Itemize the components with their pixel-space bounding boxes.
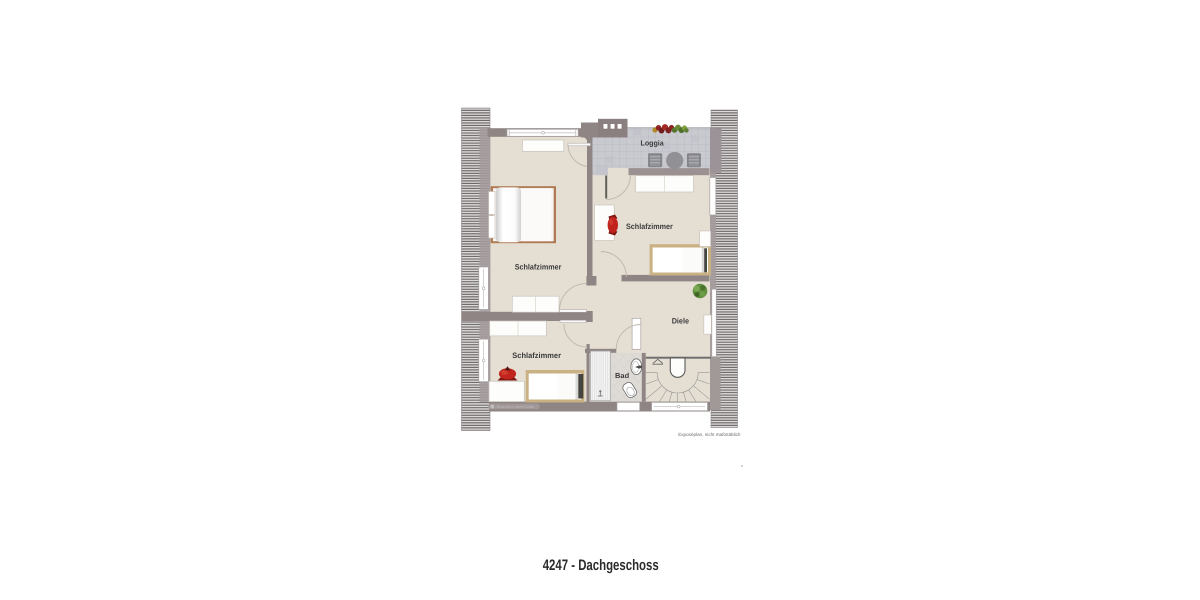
svg-text:Schlafzimmer: Schlafzimmer — [515, 262, 562, 271]
svg-text:Exposéplan, nicht maßstäblich: Exposéplan, nicht maßstäblich — [678, 432, 741, 437]
svg-text:Loggia: Loggia — [641, 138, 665, 147]
svg-text:Illustration ImmoScale: Illustration ImmoScale — [497, 405, 534, 409]
svg-text:Schlafzimmer: Schlafzimmer — [626, 222, 673, 231]
svg-text:Diele: Diele — [672, 316, 690, 325]
svg-text:4247 - Dachgeschoss: 4247 - Dachgeschoss — [543, 557, 659, 574]
svg-text:Schlafzimmer: Schlafzimmer — [512, 351, 561, 360]
svg-text:Bad: Bad — [615, 371, 629, 380]
